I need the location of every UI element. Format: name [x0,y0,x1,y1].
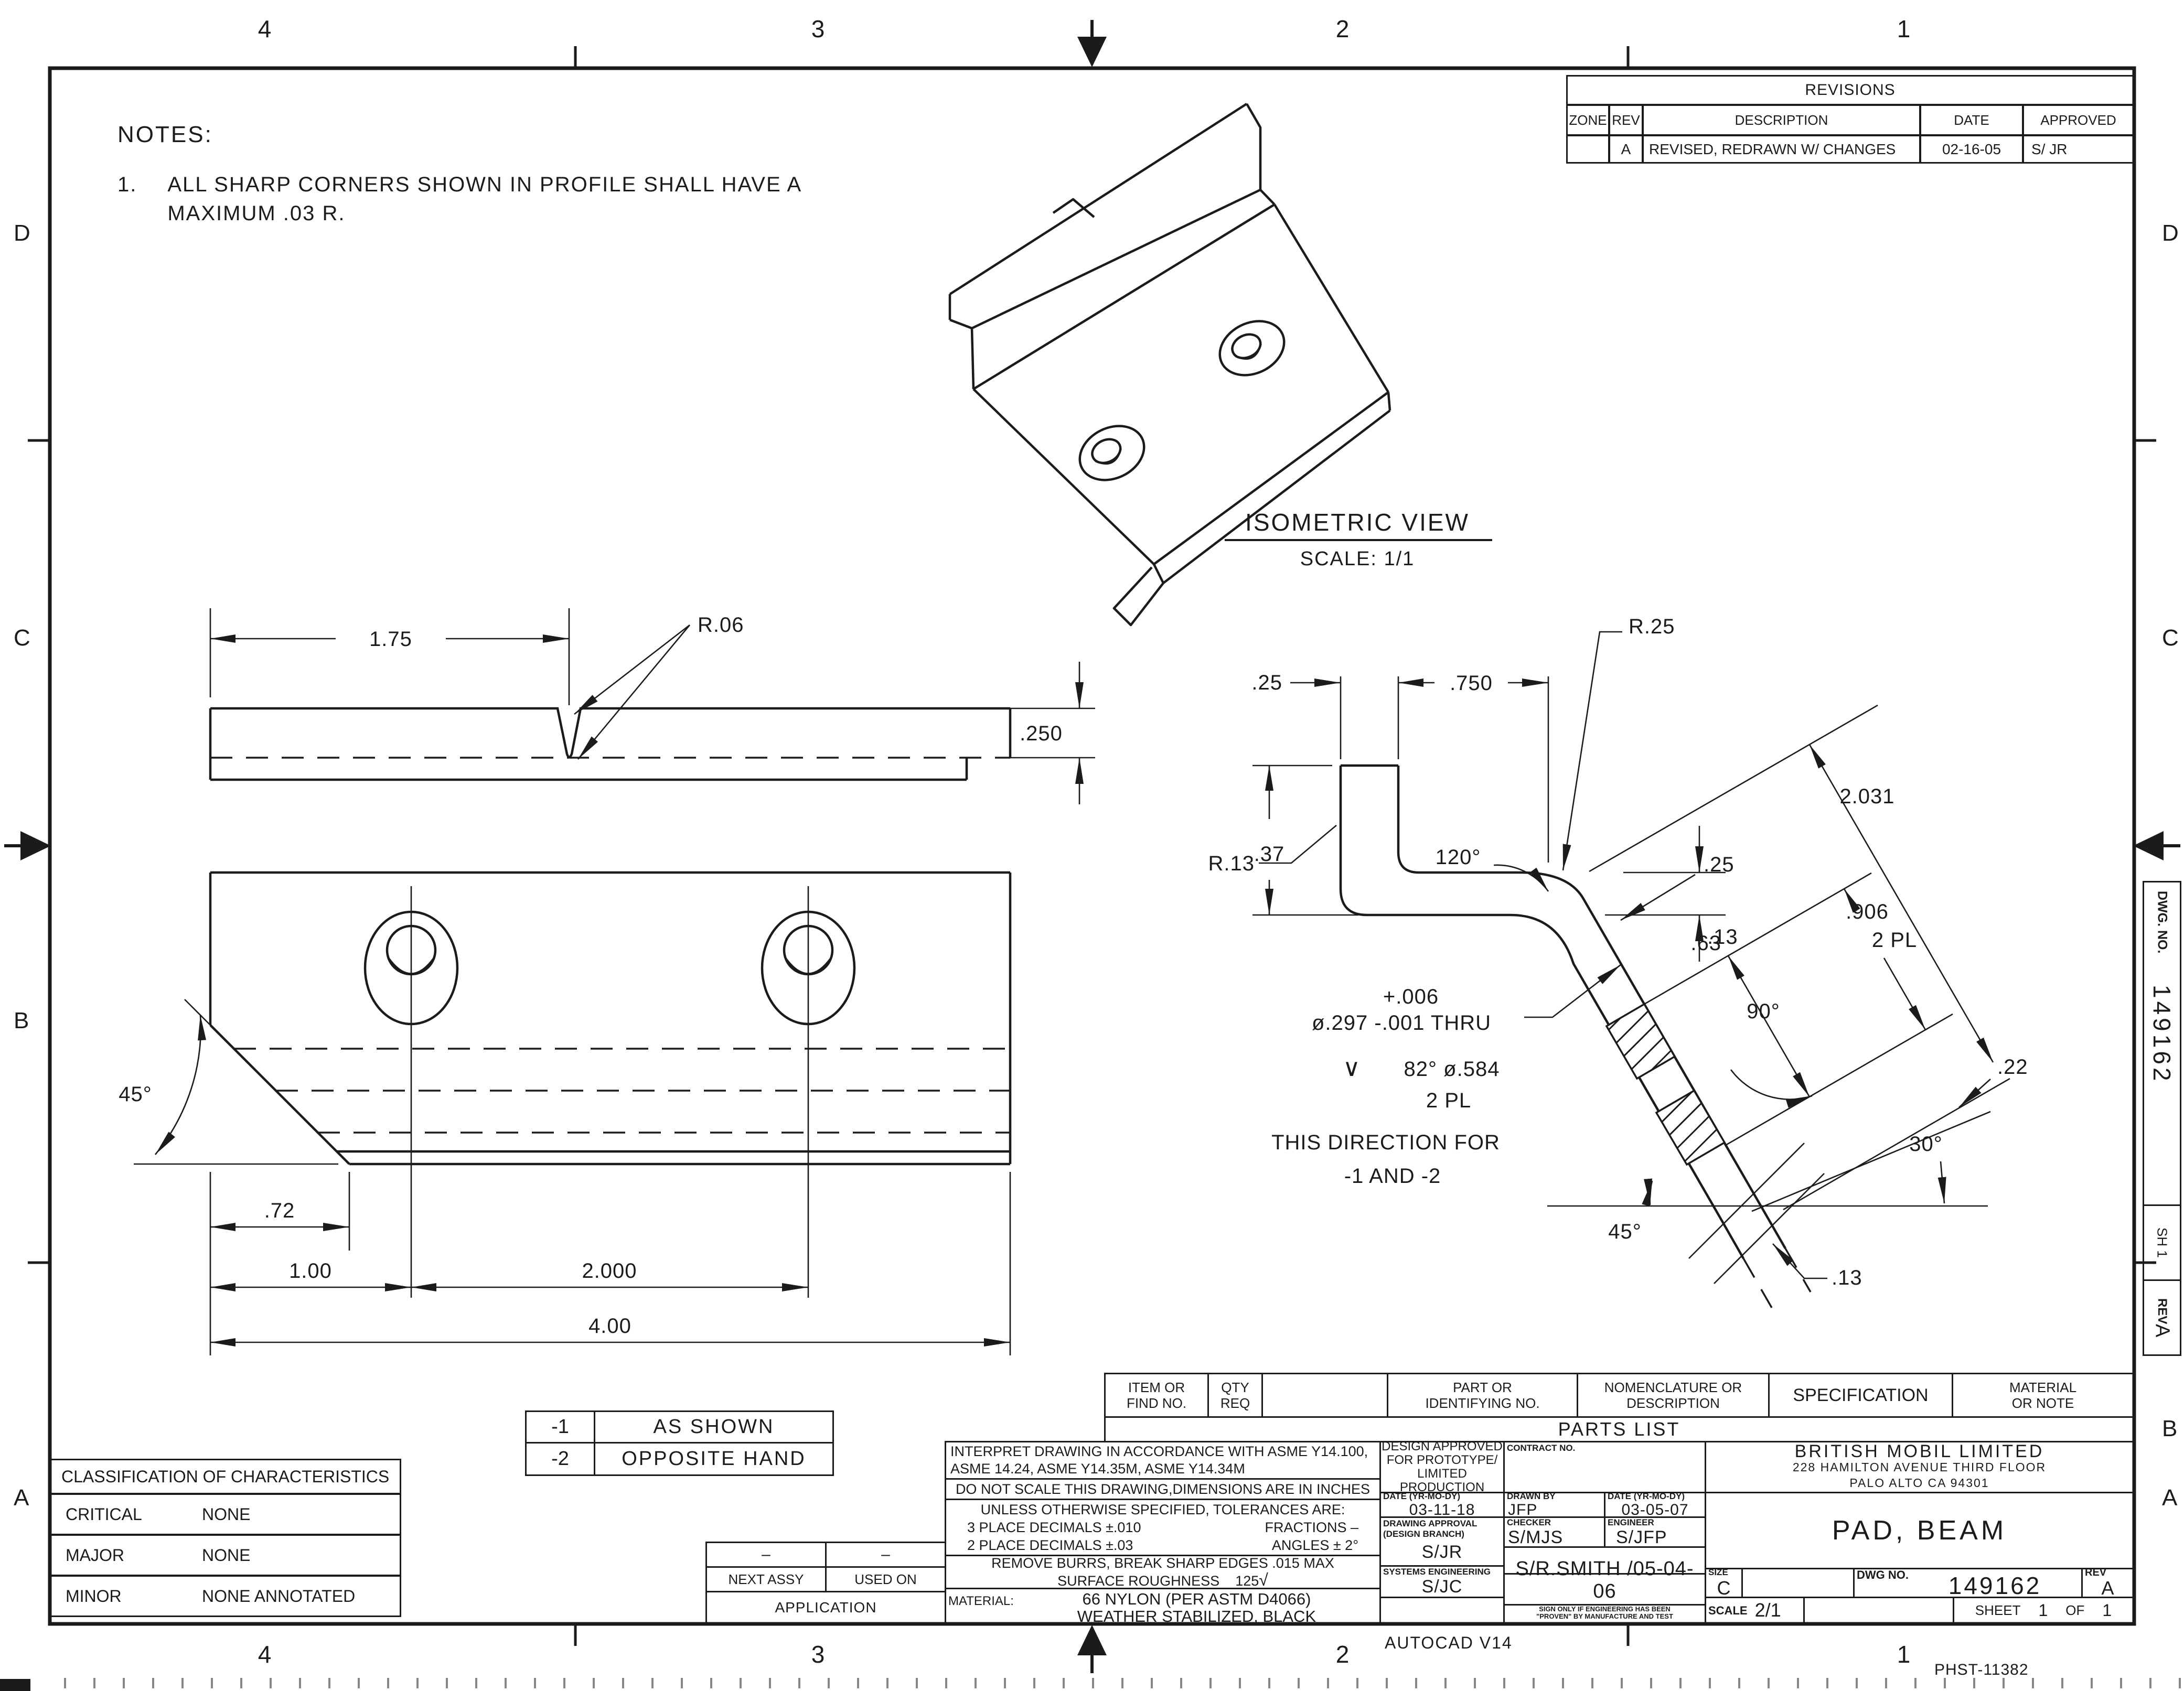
note-1-number: 1. [117,173,137,225]
iso-hole-2 [1070,416,1153,490]
profile-view [210,708,1010,780]
dim-25-slope: .25 [1704,853,1735,876]
autocad-note: AUTOCAD V14 [1385,1633,1513,1653]
document-number: PHST-11382 [1934,1661,2029,1679]
direction-note-2: -1 AND -2 [1344,1165,1441,1188]
countersink-2pl: 2 PL [1426,1089,1471,1112]
drawing-sheet: 1.75 R.06 .250 [0,0,2184,1691]
dim-906: .906 [1846,900,1889,923]
hole-callout: ø.297 -.001 THRU [1312,1011,1491,1035]
isometric-view [950,104,1390,625]
dim-750: .750 [1450,672,1493,695]
dim-2000: 2.000 [582,1259,637,1283]
dim-120: 120° [1436,846,1481,869]
iso-hole-1 [1211,311,1293,385]
note-1-line2: MAXIMUM .03 R. [167,202,802,225]
dim-45-left: 45° [119,1083,152,1106]
profile-dimensions [210,608,1095,804]
dim-22: .22 [1997,1055,2028,1079]
countersink-callout: 82° ø.584 [1404,1058,1500,1081]
notes-title: NOTES: [117,122,802,148]
dim-906-2pl: 2 PL [1872,929,1917,952]
iso-view-title: ISOMETRIC VIEW [1245,509,1470,536]
plan-view [210,873,1010,1164]
countersink-icon: ∨ [1343,1054,1361,1081]
dim-13-tip: .13 [1832,1266,1862,1289]
dim-63: .63 [1690,932,1721,955]
dim-45-right: 45° [1608,1220,1642,1243]
plan-dimensions [134,886,1010,1355]
drawing-canvas: 1.75 R.06 .250 [0,0,2184,1691]
sheet-border [4,20,2180,1673]
section-view [1341,766,1811,1308]
dim-37: .37 [1254,843,1285,866]
hidden-lines [234,1049,1010,1133]
dim-250: .250 [1020,722,1063,745]
dim-72: .72 [264,1199,295,1222]
dim-r13: R.13 [1208,852,1255,875]
dim-r25: R.25 [1629,615,1675,638]
dim-2031: 2.031 [1839,785,1894,808]
dim-90: 90° [1747,1000,1780,1023]
dim-30: 30° [1909,1133,1943,1156]
note-1-line1: ALL SHARP CORNERS SHOWN IN PROFILE SHALL… [167,173,802,197]
dim-25: .25 [1251,671,1282,694]
iso-view-scale: SCALE: 1/1 [1300,548,1415,570]
notes-block: NOTES: 1. ALL SHARP CORNERS SHOWN IN PRO… [117,122,802,225]
direction-note-1: THIS DIRECTION FOR [1271,1131,1500,1154]
center-arrow-icons [4,20,2180,1673]
dim-100: 1.00 [289,1259,332,1283]
dim-400: 4.00 [588,1315,631,1338]
dim-1-75: 1.75 [369,628,412,651]
hole-tolerance: +.006 [1383,985,1439,1008]
dim-r06: R.06 [698,613,744,637]
